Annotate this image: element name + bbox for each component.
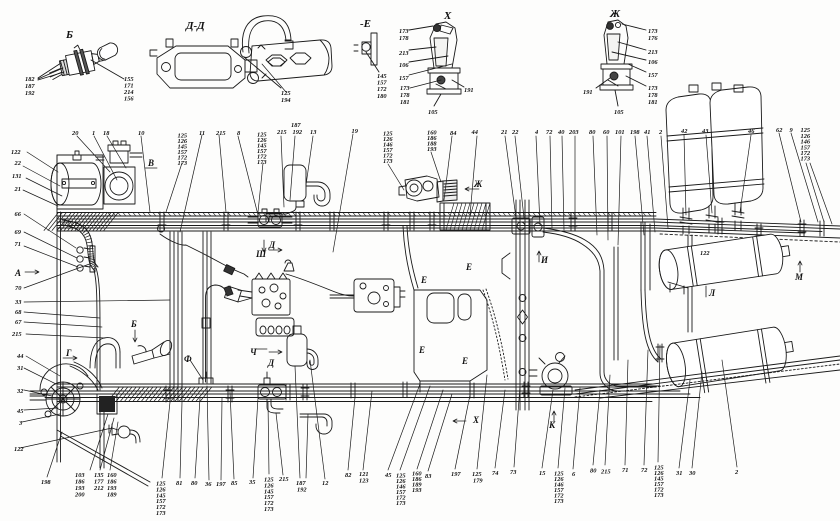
svg-text:32: 32 [16,388,24,395]
svg-text:122: 122 [700,250,710,257]
svg-text:45: 45 [384,472,392,479]
svg-text:194: 194 [281,97,291,104]
svg-text:213: 213 [647,49,658,56]
svg-text:73: 73 [510,469,517,476]
svg-text:Л: Л [708,288,716,298]
svg-text:85: 85 [231,480,238,487]
svg-text:173: 173 [399,28,409,35]
svg-text:191: 191 [464,87,474,94]
svg-text:80: 80 [589,129,596,136]
svg-text:157: 157 [648,72,658,79]
svg-text:106: 106 [648,59,658,66]
svg-text:192: 192 [293,129,303,136]
svg-text:176: 176 [648,35,658,42]
svg-text:12: 12 [322,480,329,487]
svg-text:Ж: Ж [473,179,483,189]
svg-text:Ш: Ш [255,249,267,259]
svg-text:197: 197 [216,481,226,488]
svg-text:122: 122 [11,149,21,156]
svg-text:-Е: -Е [360,18,371,30]
svg-text:66: 66 [15,211,22,218]
svg-text:Д: Д [268,240,276,250]
svg-text:13: 13 [310,129,317,136]
svg-text:62: 62 [776,127,783,134]
svg-text:182: 182 [25,76,35,83]
svg-text:173: 173 [383,158,393,165]
svg-text:Е: Е [465,262,472,272]
svg-text:Ч: Ч [250,347,257,357]
svg-text:173: 173 [178,160,188,167]
svg-text:35: 35 [248,479,256,486]
svg-text:82: 82 [345,472,352,479]
svg-text:106: 106 [399,62,409,69]
svg-text:105: 105 [428,109,438,116]
svg-text:4: 4 [534,129,538,136]
svg-text:173: 173 [648,85,658,92]
svg-text:213: 213 [398,50,409,57]
svg-text:71: 71 [622,467,628,474]
svg-text:192: 192 [297,487,307,494]
svg-text:21: 21 [14,186,21,193]
svg-text:А: А [14,268,21,278]
svg-text:189: 189 [107,492,117,499]
svg-text:178: 178 [400,92,410,99]
svg-text:Б: Б [65,29,73,41]
svg-text:71: 71 [15,241,21,248]
svg-text:Е: Е [461,356,468,366]
svg-text:193: 193 [427,146,437,153]
svg-text:М: М [794,272,804,282]
svg-text:Х: Х [443,10,452,22]
svg-text:70: 70 [15,285,22,292]
svg-text:81: 81 [176,480,182,487]
svg-text:179: 179 [473,478,483,485]
svg-text:83: 83 [425,473,432,480]
svg-text:21: 21 [500,129,507,136]
svg-text:180: 180 [377,93,387,100]
svg-text:178: 178 [648,92,658,99]
svg-text:187: 187 [291,122,301,129]
svg-text:42: 42 [680,128,688,135]
svg-text:212: 212 [93,485,104,492]
svg-text:173: 173 [554,498,564,505]
svg-text:215: 215 [11,331,22,338]
svg-text:105: 105 [614,109,624,116]
svg-text:156: 156 [124,96,134,103]
svg-text:41: 41 [643,129,650,136]
svg-text:44: 44 [471,129,478,136]
svg-text:43: 43 [701,128,709,135]
svg-text:К: К [548,420,556,430]
svg-text:1: 1 [92,130,95,137]
svg-text:173: 173 [654,492,664,499]
svg-text:69: 69 [15,229,22,236]
svg-text:10: 10 [138,130,145,137]
svg-text:72: 72 [546,129,553,136]
svg-text:173: 173 [156,510,166,517]
svg-text:11: 11 [199,130,205,137]
svg-text:Е: Е [418,345,425,355]
svg-text:22: 22 [511,129,519,136]
svg-text:157: 157 [399,75,409,82]
svg-text:В: В [147,158,154,168]
svg-text:И: И [540,255,549,265]
svg-text:20: 20 [71,130,79,137]
svg-text:72: 72 [641,467,648,474]
svg-text:123: 123 [359,478,369,485]
svg-text:215: 215 [276,129,287,136]
svg-text:125: 125 [281,90,291,97]
svg-text:Д-Д: Д-Д [185,20,205,32]
svg-text:80: 80 [590,468,597,475]
svg-text:40: 40 [557,129,565,136]
svg-text:Ф: Ф [184,354,192,364]
svg-text:191: 191 [583,89,593,96]
svg-text:30: 30 [688,470,696,477]
svg-text:45: 45 [16,408,24,415]
svg-text:19: 19 [352,128,359,135]
svg-text:Е: Е [420,275,427,285]
svg-text:60: 60 [603,129,610,136]
svg-text:74: 74 [492,470,498,477]
svg-text:Б: Б [130,319,137,329]
svg-text:215: 215 [278,476,289,483]
svg-text:67: 67 [15,319,22,326]
svg-text:68: 68 [15,309,22,316]
svg-text:33: 33 [14,299,22,306]
svg-text:173: 173 [801,156,811,163]
svg-text:198: 198 [41,479,51,486]
svg-text:22: 22 [14,160,22,167]
svg-text:173: 173 [257,159,267,166]
svg-text:15: 15 [539,470,546,477]
svg-text:Ж: Ж [609,8,621,20]
svg-text:122: 122 [14,446,24,453]
svg-text:80: 80 [191,480,198,487]
svg-text:198: 198 [630,129,640,136]
svg-text:181: 181 [648,99,658,106]
svg-text:215: 215 [600,469,611,476]
svg-text:Х: Х [472,415,480,425]
svg-text:18: 18 [103,130,110,137]
svg-text:173: 173 [264,506,274,513]
svg-text:215: 215 [215,130,226,137]
svg-text:31: 31 [16,365,23,372]
svg-text:44: 44 [16,353,23,360]
svg-text:197: 197 [451,471,461,478]
svg-text:181: 181 [400,99,410,106]
svg-text:193: 193 [412,487,422,494]
svg-text:173: 173 [648,28,658,35]
svg-text:31: 31 [675,470,682,477]
svg-text:178: 178 [399,35,409,42]
svg-text:101: 101 [615,129,625,136]
svg-text:200: 200 [74,492,85,499]
svg-text:Д: Д [267,358,275,368]
svg-text:192: 192 [25,90,35,97]
svg-text:46: 46 [747,128,755,135]
svg-text:203: 203 [568,129,579,136]
svg-text:131: 131 [12,173,22,180]
svg-text:36: 36 [204,481,212,488]
svg-text:Г: Г [65,348,72,358]
svg-text:187: 187 [25,83,35,90]
svg-text:173: 173 [400,85,410,92]
svg-text:84: 84 [450,130,456,137]
svg-text:173: 173 [396,500,406,507]
